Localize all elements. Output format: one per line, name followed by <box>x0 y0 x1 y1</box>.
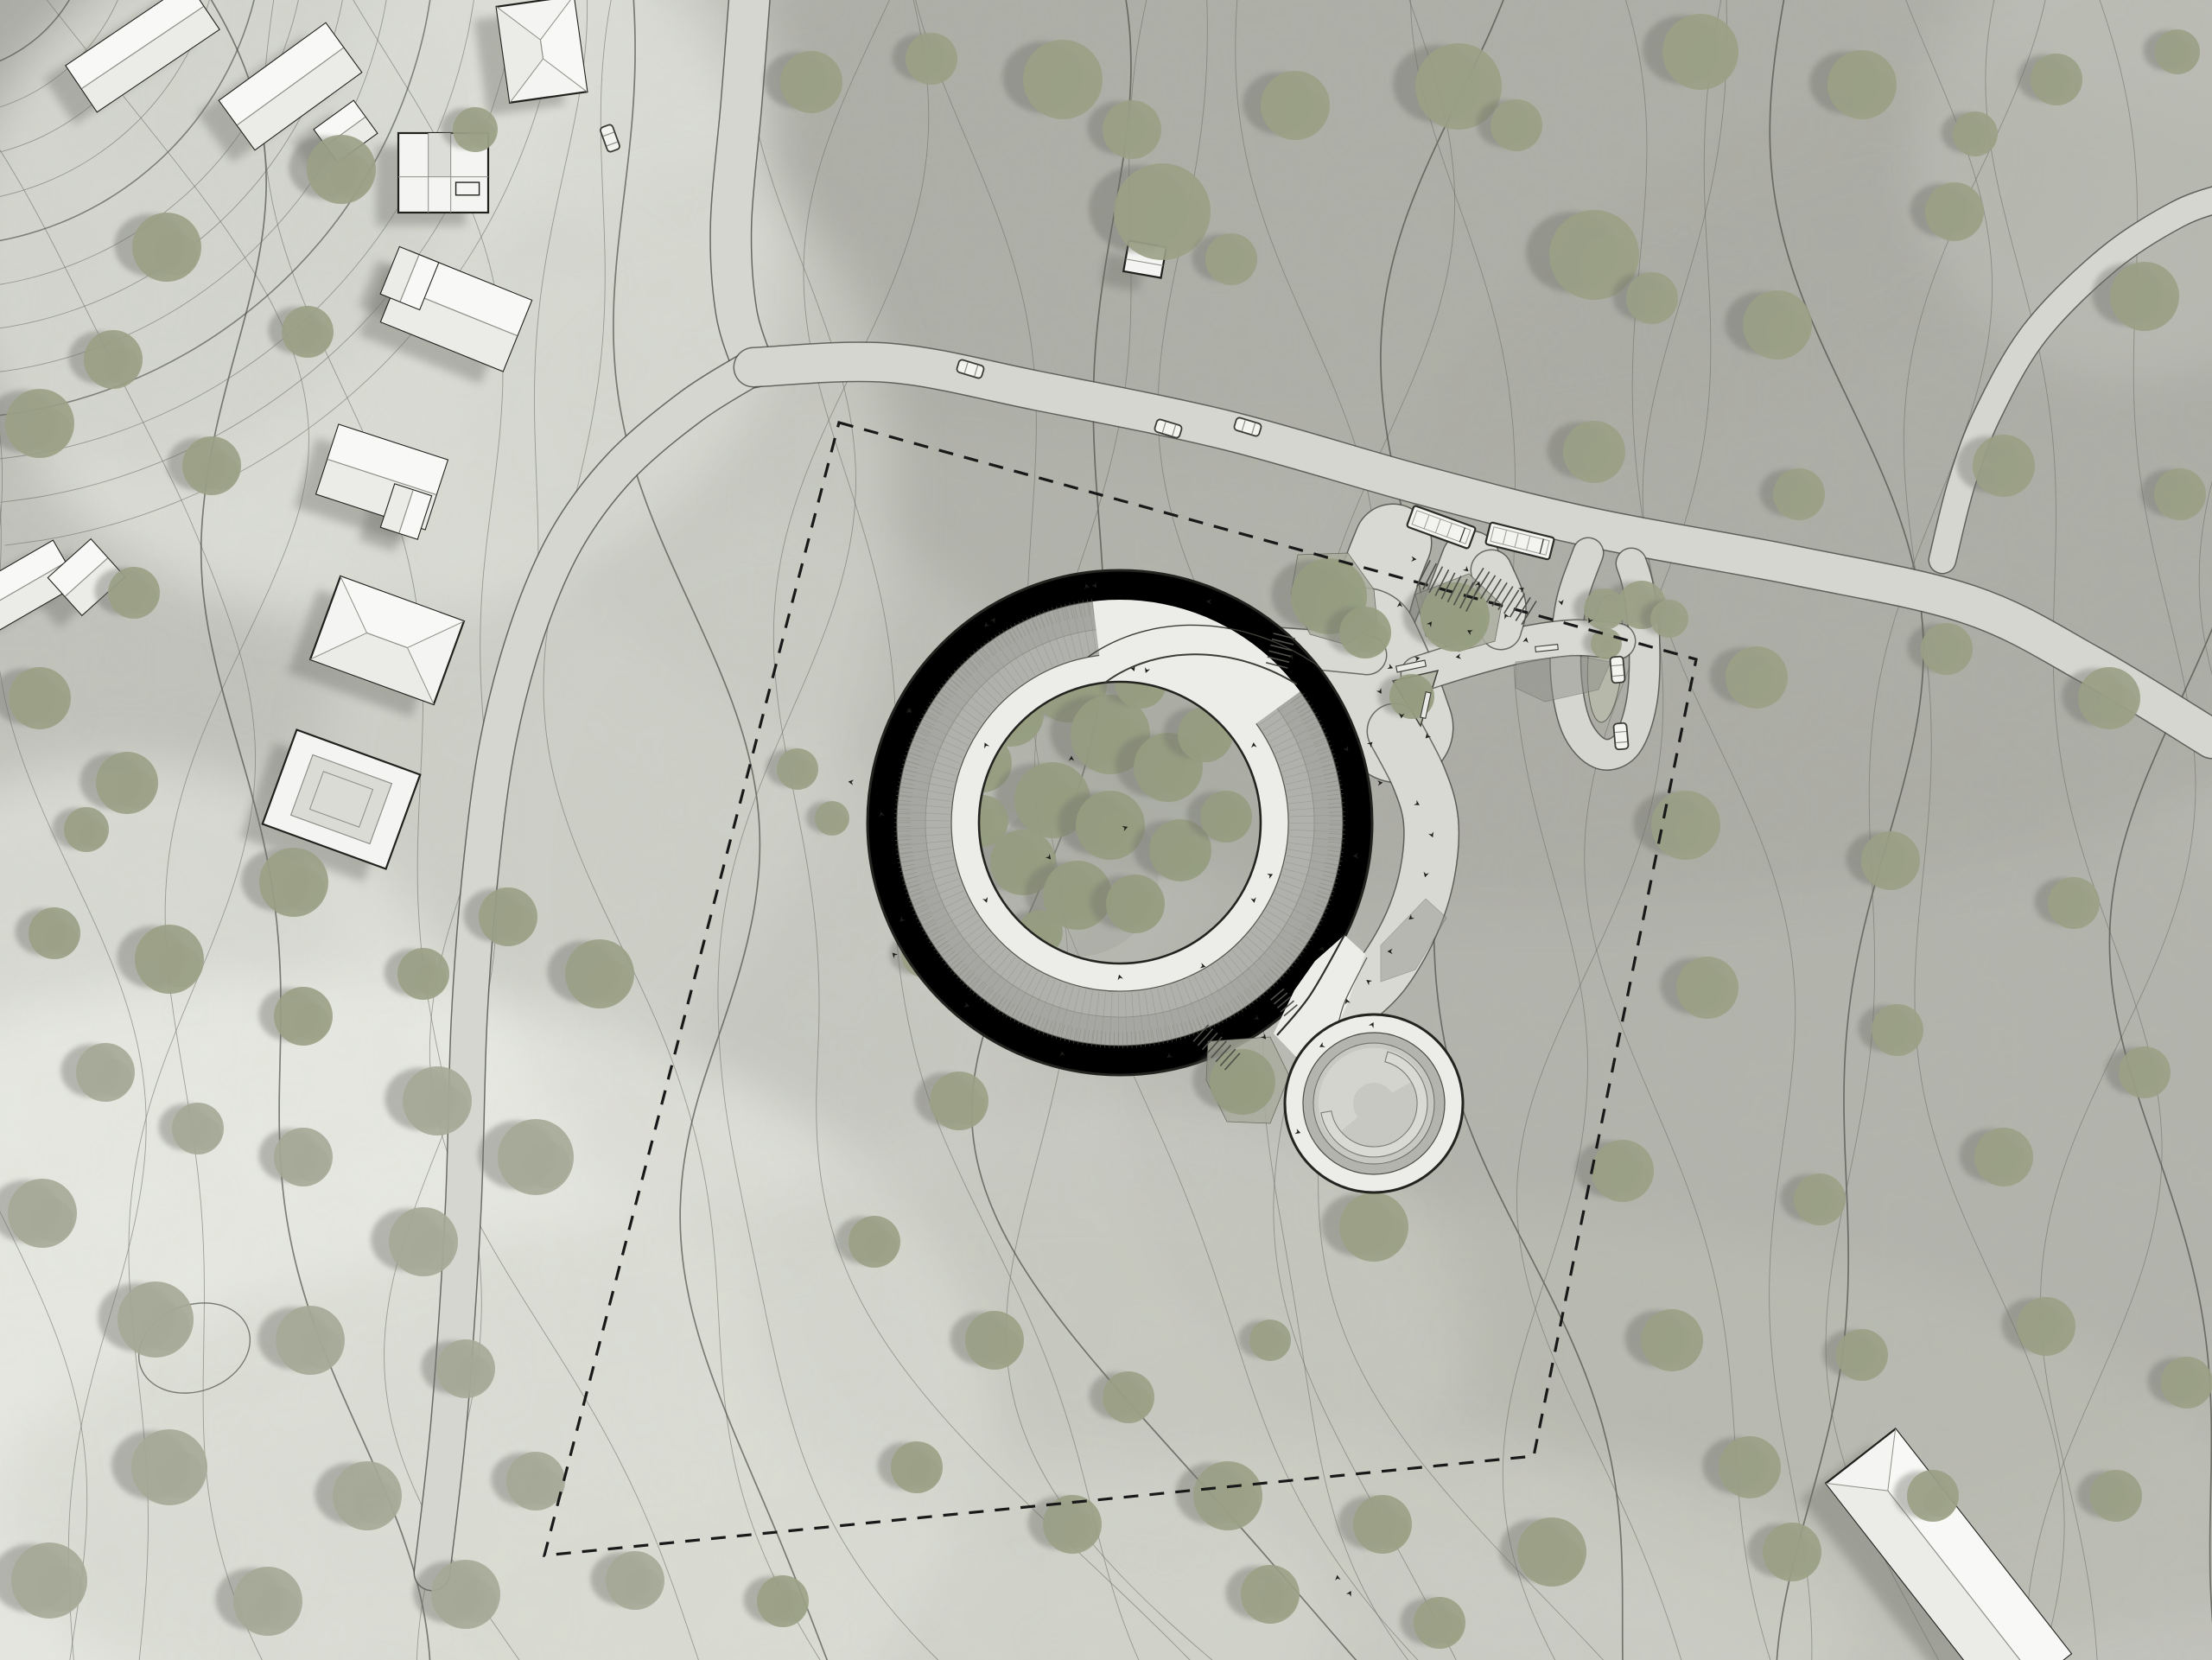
house-c <box>497 0 588 103</box>
site-plan: Architectural site plan — circular ring … <box>0 0 2212 1660</box>
spiral-pavilion <box>1285 1014 1463 1193</box>
tree <box>0 1179 77 1248</box>
site-plan-svg <box>0 0 2212 1660</box>
tree <box>0 1542 87 1619</box>
road-north-access-road <box>731 0 753 367</box>
car <box>1610 656 1625 683</box>
tree <box>0 667 71 729</box>
tree <box>0 389 74 458</box>
car <box>1613 722 1629 749</box>
